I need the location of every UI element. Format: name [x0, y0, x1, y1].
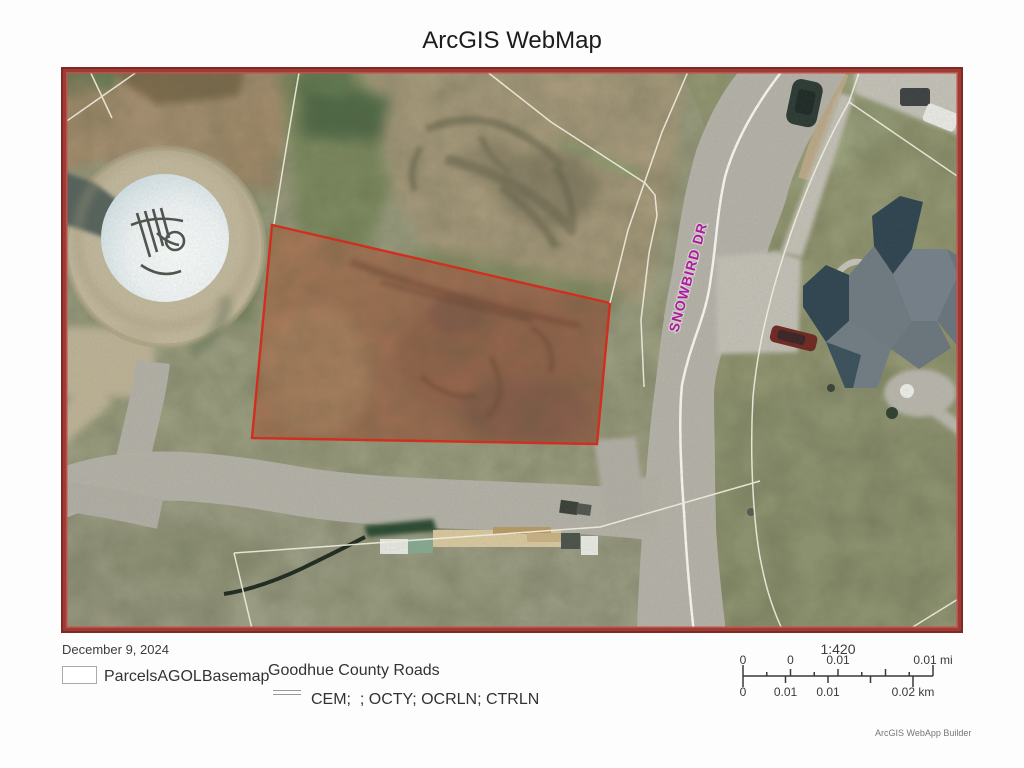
svg-text:0: 0 — [740, 685, 747, 699]
svg-text:0: 0 — [740, 655, 747, 667]
svg-text:0.01: 0.01 — [816, 685, 840, 699]
svg-text:0.01: 0.01 — [774, 685, 798, 699]
svg-text:0.02 km: 0.02 km — [892, 685, 935, 699]
svg-text:0.01: 0.01 — [826, 655, 850, 667]
svg-text:0: 0 — [787, 655, 794, 667]
svg-text:0.01 mi: 0.01 mi — [913, 655, 952, 667]
